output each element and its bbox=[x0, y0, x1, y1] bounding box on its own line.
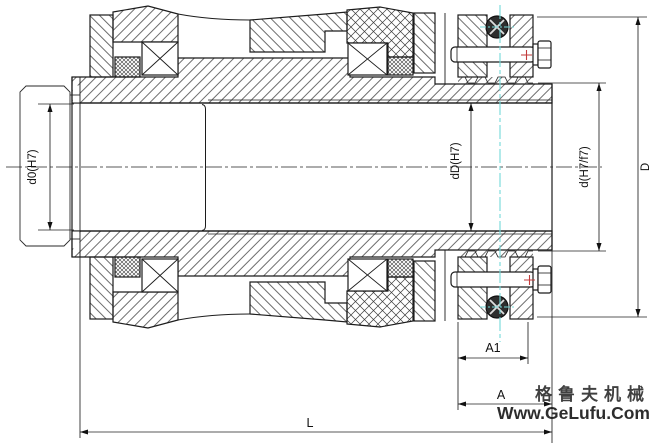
oring-left-bottom bbox=[115, 257, 140, 277]
bolt-head-bottom bbox=[538, 266, 551, 293]
seal-carrier-right-bottom bbox=[414, 261, 435, 321]
dim-label-A1: A1 bbox=[485, 341, 500, 355]
oring-left-top bbox=[115, 57, 140, 77]
dim-label-L: L bbox=[307, 416, 314, 430]
seal-carrier-left-top bbox=[90, 15, 113, 77]
dim-label-dD: dD(H7) bbox=[450, 142, 462, 179]
dim-label-d: d(H7/f7) bbox=[579, 146, 591, 188]
dim-label-D: D bbox=[640, 163, 650, 171]
bolt-head-top bbox=[538, 41, 551, 68]
seal-carrier-left-bottom bbox=[90, 257, 113, 319]
engineering-drawing-page: d0(H7) dD(H7) d(H7/f7) D A1 A L 格鲁夫机械 Ww… bbox=[0, 0, 650, 445]
watermark-brand: 格鲁夫机械 bbox=[535, 384, 650, 404]
seal-carrier-right-top bbox=[414, 13, 435, 73]
sleeve-flange-left-top bbox=[113, 6, 178, 42]
dim-label-d0: d0(H7) bbox=[27, 149, 39, 184]
oring-right-top bbox=[388, 57, 413, 75]
dim-label-A: A bbox=[497, 388, 506, 402]
bolt-shank-bottom bbox=[451, 272, 535, 287]
coupling-section-drawing: d0(H7) dD(H7) d(H7/f7) D A1 A L 格鲁夫机械 Ww… bbox=[0, 0, 650, 445]
sleeve-flange-left-bottom bbox=[113, 292, 178, 328]
watermark-url: Www.GeLufu.Com bbox=[497, 403, 650, 423]
oring-right-bottom bbox=[388, 259, 413, 277]
